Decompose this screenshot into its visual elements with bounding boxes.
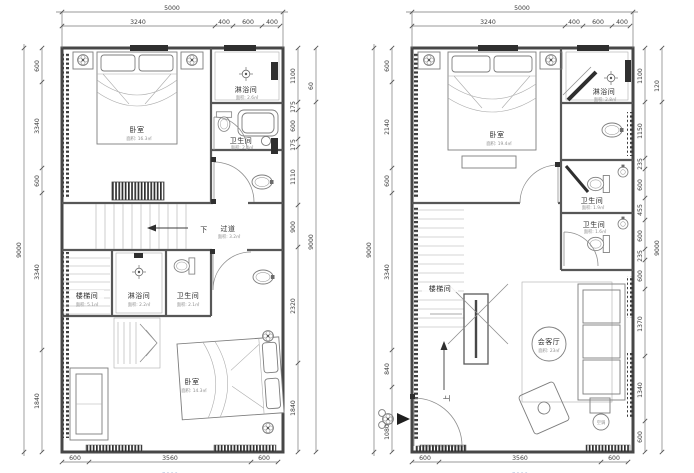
dim-text: 1100 <box>290 68 297 84</box>
dim-text: 600 <box>637 179 644 191</box>
sofa <box>578 284 625 400</box>
dim-text: 2140 <box>384 119 391 135</box>
threshold <box>416 446 464 452</box>
dim-text: 400 <box>568 19 580 26</box>
flower-icon <box>263 331 274 342</box>
wall-hatch <box>627 112 633 156</box>
wall-hatch <box>413 52 419 198</box>
dim-text: 235 <box>637 158 644 170</box>
dim-text: 1840 <box>290 400 297 416</box>
window-sill <box>214 445 276 452</box>
room-area: 面积: 3.2㎡ <box>218 233 241 240</box>
room-area: 面积: 2.1㎡ <box>177 301 200 308</box>
flower-icon <box>187 55 198 66</box>
up-label: 上 <box>442 394 451 402</box>
dim-text: 600 <box>34 175 41 187</box>
dim-text: 235 <box>637 250 644 262</box>
dim-text: 9000 <box>654 240 661 256</box>
dim-text: 600 <box>419 455 431 462</box>
room-area: 面积: 14.3㎡ <box>181 387 207 394</box>
dim-text: 400 <box>616 19 628 26</box>
dim-text: 5000 <box>164 5 180 12</box>
dim-text: 3340 <box>34 264 41 280</box>
room-label-living: 会客厅 <box>538 337 561 346</box>
dim-text: 60 <box>308 82 315 90</box>
dim-text: 400 <box>218 19 230 26</box>
wall-hatch <box>63 252 69 438</box>
room-label-bedroom: 卧室 <box>185 377 200 386</box>
room-label-bedroom: 卧室 <box>490 130 505 139</box>
dim-text: 3560 <box>162 455 178 462</box>
down-label: 下 <box>200 226 208 234</box>
ac-label: 空调 <box>597 419 606 426</box>
flower-icon <box>546 55 557 66</box>
dim-text: 400 <box>266 19 278 26</box>
door-hinge <box>211 199 216 204</box>
room-area: 面积: 16.3㎡ <box>126 135 152 142</box>
dim-text: 9000 <box>16 242 23 258</box>
floor-plans-drawing: 卧室 面积: 16.3㎡ 淋浴间 面积: 2.6㎡ 卫生间 面积: 2.4㎡ 下… <box>0 0 694 473</box>
dim-text: 175 <box>290 139 297 151</box>
floor-drain-icon <box>261 136 270 145</box>
flower-icon <box>424 55 435 66</box>
radiator <box>271 62 278 80</box>
window-sill <box>586 445 630 452</box>
dim-text: 3340 <box>34 118 41 134</box>
dim-text: 3240 <box>480 19 496 26</box>
down-arrow-icon <box>147 225 156 232</box>
room-area: 面积: 2.4㎡ <box>231 144 254 151</box>
door-arc <box>213 252 251 290</box>
door-hinge <box>210 249 215 254</box>
dim-text: 2320 <box>290 298 297 314</box>
ceiling-lamp-icon <box>604 71 618 85</box>
room-area: 面积: 23㎡ <box>538 347 560 354</box>
flower-icon <box>263 423 274 434</box>
door-hinge <box>410 394 415 399</box>
toilet <box>174 258 195 274</box>
dim-text: 1150 <box>637 123 644 139</box>
dim-text: 600 <box>290 120 297 132</box>
radiator <box>271 138 278 154</box>
ceiling-lamp-icon <box>132 265 146 279</box>
door-hinge <box>211 157 216 162</box>
room-area: 面积: 5.1㎡ <box>76 301 99 308</box>
dim-text: 1100 <box>637 68 644 84</box>
dim-text: 600 <box>608 455 620 462</box>
room-area: 面积: 2.6㎡ <box>236 94 259 101</box>
dim-text: 600 <box>384 175 391 187</box>
dim-text: 175 <box>290 101 297 113</box>
washbasin <box>252 175 274 189</box>
room-area: 面积: 19.4㎡ <box>486 140 512 147</box>
door-arc <box>520 165 558 203</box>
window-band <box>577 45 609 51</box>
wall-hatch <box>63 52 69 199</box>
door-arc <box>414 398 462 446</box>
dim-text: 455 <box>637 204 644 216</box>
room-area: 面积: 1.6㎡ <box>584 228 607 235</box>
dim-text: 9000 <box>308 234 315 250</box>
dim-text: 600 <box>592 19 604 26</box>
dim-text: 3240 <box>130 19 146 26</box>
dim-text: 900 <box>290 221 297 233</box>
wall-hatch <box>627 352 633 418</box>
dim-text: 3340 <box>384 264 391 280</box>
right-floor-plan: 卧室 面积: 19.4㎡ 淋浴间 面积: 2.8㎡ 卫生间 面积: 1.9㎡ 卫… <box>366 5 664 473</box>
entry-arrow-icon <box>397 413 410 425</box>
room-label-shower: 淋浴间 <box>128 291 151 300</box>
room-label-wc: 卫生间 <box>230 136 253 145</box>
dim-text: 600 <box>242 19 254 26</box>
dresser <box>462 156 516 168</box>
dim-text: 600 <box>258 455 270 462</box>
armchair <box>518 381 570 435</box>
wall-hatch <box>627 276 633 318</box>
toilet <box>588 175 610 192</box>
room-label-bedroom: 卧室 <box>130 125 145 134</box>
dim-text: 600 <box>637 270 644 282</box>
winder-stair <box>114 318 160 368</box>
room-label-shower: 淋浴间 <box>593 87 616 96</box>
room-label-stair: 楼梯间 <box>76 291 99 300</box>
floor-plan-sheet: 卧室 面积: 16.3㎡ 淋浴间 面积: 2.6㎡ 卫生间 面积: 2.4㎡ 下… <box>0 0 694 473</box>
dim-text: 9000 <box>366 242 373 258</box>
window-band <box>478 45 518 51</box>
radiator <box>625 60 631 82</box>
dim-text: 600 <box>637 230 644 242</box>
room-label-wc: 卫生间 <box>177 291 200 300</box>
left-floor-plan: 卧室 面积: 16.3㎡ 淋浴间 面积: 2.6㎡ 卫生间 面积: 2.4㎡ 下… <box>16 5 318 473</box>
door-arc <box>214 162 254 202</box>
stair-treads <box>96 204 186 249</box>
cabinet-hatch <box>112 182 164 200</box>
round-sink <box>618 165 628 177</box>
dim-text: 3560 <box>512 455 528 462</box>
room-label-shower: 淋浴间 <box>235 85 258 94</box>
room-label-corridor: 过道 <box>221 224 236 233</box>
room-area: 面积: 2.8㎡ <box>594 96 617 103</box>
room-label-wc: 卫生间 <box>581 196 604 205</box>
dim-text: 120 <box>654 80 661 92</box>
shower-head <box>134 253 143 258</box>
toilet <box>588 235 610 252</box>
door-leaf <box>566 166 588 192</box>
round-sink <box>618 217 628 229</box>
dim-text: 1340 <box>637 382 644 398</box>
dim-text: 5000 <box>514 5 530 12</box>
dim-text: 1080 <box>384 424 391 440</box>
window-sill <box>86 445 142 452</box>
room-area: 面积: 1.9㎡ <box>582 204 605 211</box>
dim-text: 600 <box>637 431 644 443</box>
room-label-stair: 楼梯间 <box>429 284 452 293</box>
dim-text: 1840 <box>34 393 41 409</box>
window-band <box>224 45 256 51</box>
window-band <box>130 45 168 51</box>
dim-text: 840 <box>384 363 391 375</box>
dim-text: 600 <box>69 455 81 462</box>
sofa <box>70 368 108 440</box>
toilet <box>216 112 231 132</box>
door-hinge <box>555 162 560 167</box>
washbasin <box>253 270 275 284</box>
dim-text: 1370 <box>637 316 644 332</box>
dim-text: 600 <box>384 60 391 72</box>
room-label-wc: 卫生间 <box>583 220 606 229</box>
ceiling-lamp-icon <box>239 67 253 81</box>
stair-treads <box>413 210 464 327</box>
washbasin <box>602 123 624 137</box>
flower-icon <box>78 55 89 66</box>
up-arrow-icon <box>441 341 448 350</box>
dim-text: 1110 <box>290 169 297 185</box>
dim-text: 600 <box>34 60 41 72</box>
room-area: 面积: 2.2㎡ <box>128 301 151 308</box>
